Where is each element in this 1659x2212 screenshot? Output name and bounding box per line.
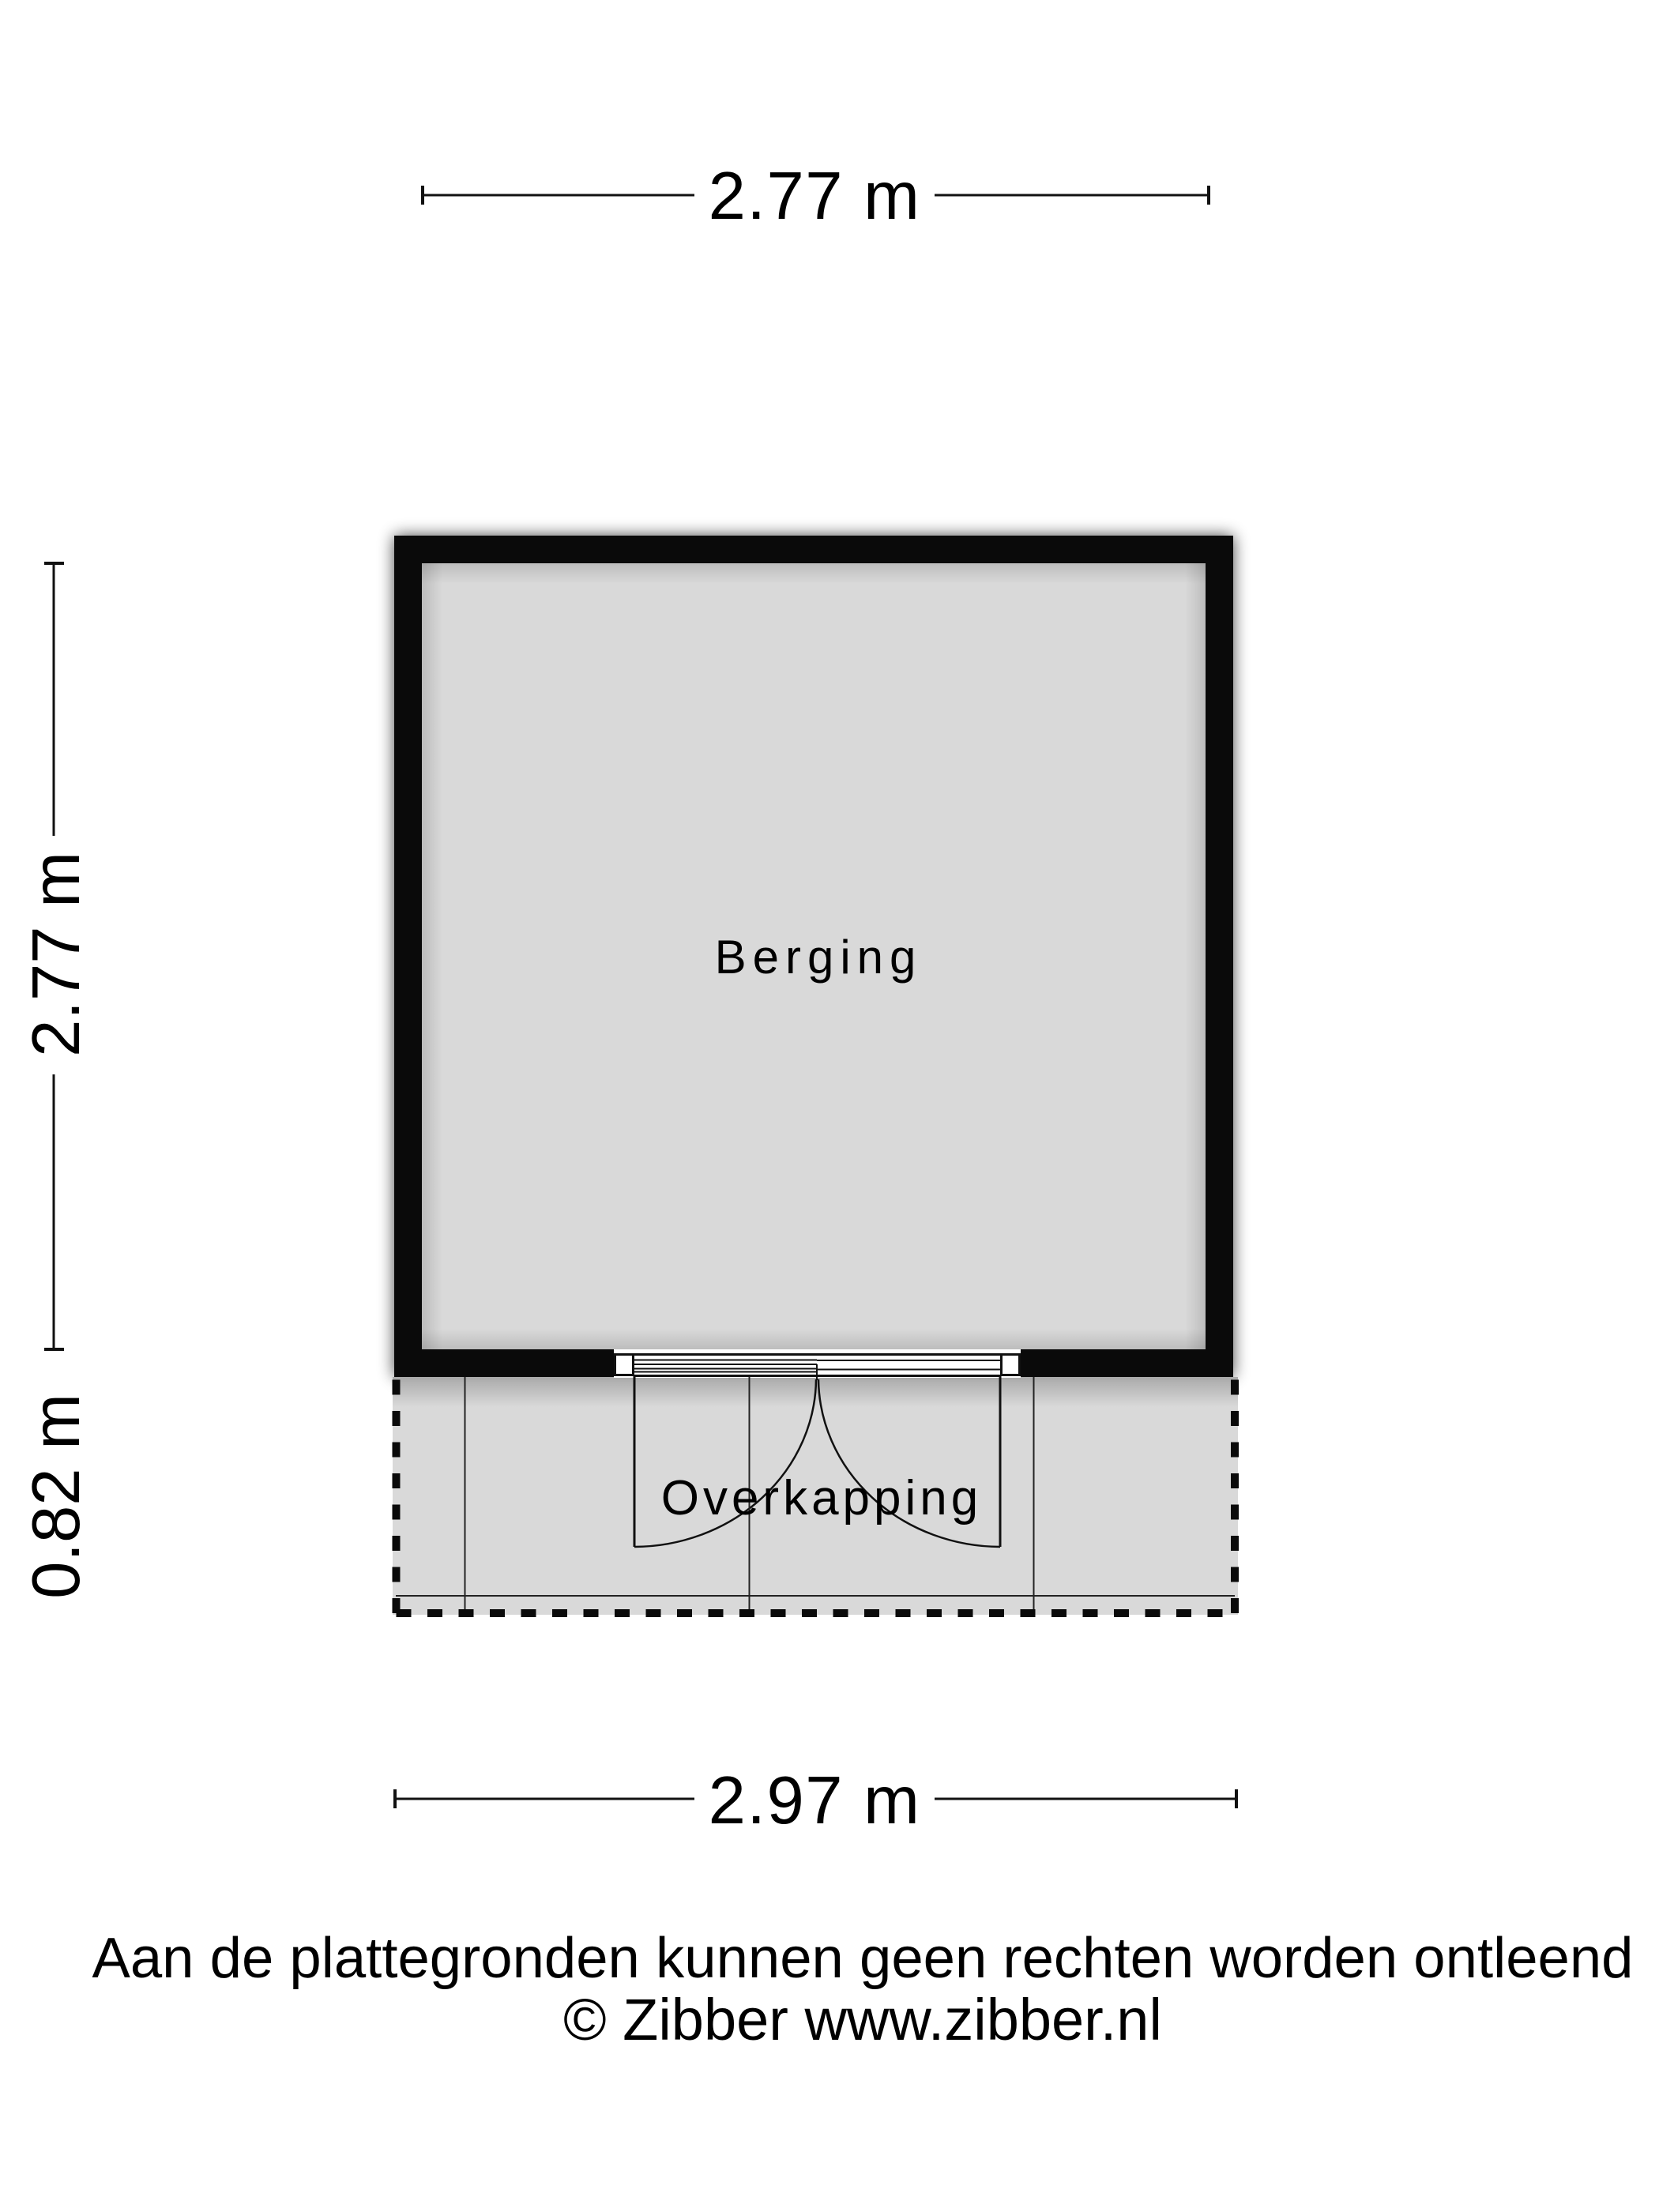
svg-text:Berging: Berging — [715, 931, 923, 984]
svg-text:Overkapping: Overkapping — [661, 1471, 983, 1525]
svg-text:© Zibber www.zibber.nl: © Zibber www.zibber.nl — [563, 1987, 1162, 2052]
svg-text:0.82 m: 0.82 m — [19, 1394, 94, 1599]
svg-text:2.97 m: 2.97 m — [709, 1763, 921, 1838]
svg-text:2.77 m: 2.77 m — [19, 852, 94, 1057]
svg-text:Aan de plattegronden kunnen ge: Aan de plattegronden kunnen geen rechten… — [92, 1926, 1634, 1990]
svg-text:2.77 m: 2.77 m — [709, 159, 921, 234]
